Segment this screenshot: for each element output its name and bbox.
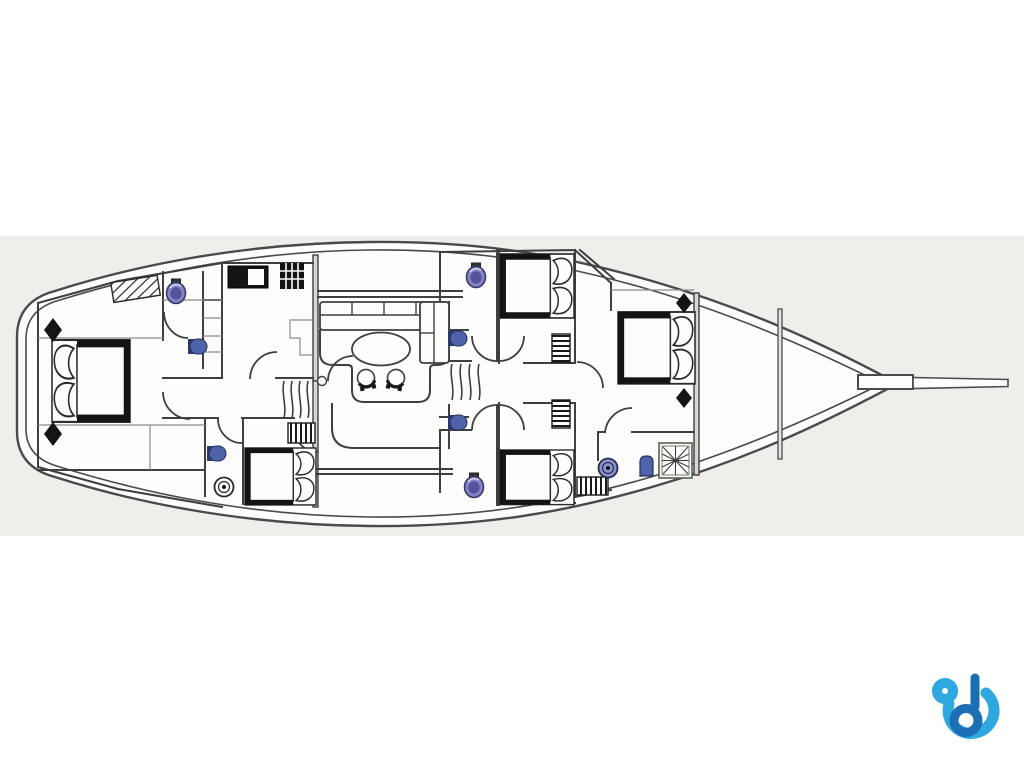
bed-midship-cabin-aft (500, 450, 574, 505)
saloon-table (352, 333, 410, 366)
washbasin-midship-aft (448, 415, 467, 430)
galley-burner-grid (280, 263, 304, 289)
locker-fwd-cabin (552, 334, 570, 362)
galley-stove (228, 266, 268, 288)
locker-aft-cabin (552, 400, 570, 428)
bowsprit-pole (913, 378, 1008, 389)
bed-master-cabin (52, 340, 130, 422)
toilet-bow-bathroom (640, 456, 653, 476)
bed-bow-cabin (618, 312, 695, 384)
locker-port-cabin (288, 423, 315, 443)
shower-bow-bathroom (659, 443, 692, 478)
washbasin-round-port (215, 478, 234, 497)
bed-midship-cabin-fwd (500, 254, 574, 318)
deck-plan-canvas (0, 0, 1024, 768)
galley-saloon-bulkhead (313, 255, 318, 381)
forepeak-bulkhead (778, 309, 782, 459)
washbasin-aft-head (188, 339, 207, 354)
washbasin-port-aft (207, 446, 226, 461)
bed-port-aft-cabin (245, 448, 316, 505)
washbasin-round-bow (599, 459, 618, 478)
washbasin-midship-fwd (448, 331, 467, 346)
locker-bow-bathroom (577, 477, 608, 495)
door-pivot-dot (318, 377, 327, 386)
